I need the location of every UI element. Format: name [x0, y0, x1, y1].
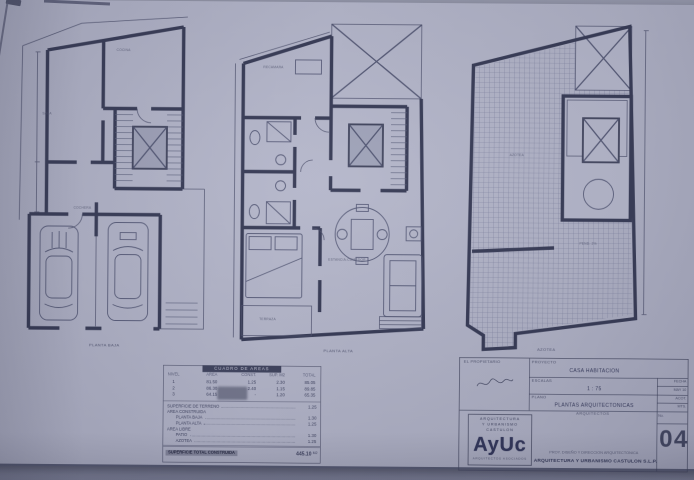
logo-wordmark: AyUc: [468, 435, 531, 455]
bed-icon: [246, 234, 303, 298]
divider: [529, 358, 530, 410]
void-x-symbol: [575, 26, 632, 90]
room-label: TERRAZA: [249, 318, 285, 322]
column-header: SUP. M2: [260, 373, 289, 379]
room-label: COCHERA: [64, 206, 100, 210]
areas-table-title: CUADRO DE AREAS: [202, 365, 281, 372]
elevator-symbol: [133, 127, 167, 169]
column-header: CONST.: [221, 373, 260, 380]
room-label: AZOTEA: [499, 153, 535, 157]
firm-logo: ARQUITECTURA Y URBANISMO CASTULON AyUc A…: [468, 414, 532, 466]
table-cell: 1.20: [260, 393, 289, 399]
divider: [529, 394, 688, 396]
room-label: COCINA: [106, 48, 142, 52]
total-label: SUPERFICIE TOTAL CONSTRUIDA: [166, 450, 238, 456]
car-icon: [39, 226, 78, 320]
side-cell: MAY 10: [658, 388, 686, 392]
balcony-rail: [379, 317, 421, 329]
table-header-row: NIVEL AREA CONST. SUP. M2 TOTAL: [165, 372, 319, 379]
total-value: 445.10: [296, 451, 311, 457]
firm-name: ARQUITECTURA Y URBANISMO CASTULON S.L.P.: [534, 457, 654, 464]
divider: [163, 400, 320, 402]
sofa-icon: [384, 227, 423, 317]
credit-line: PROY. DISEÑO Y DIRECCION ARQUITECTONICA: [538, 450, 650, 455]
table-total-row: SUPERFICIE TOTAL CONSTRUIDA 445.10 M2: [166, 447, 318, 458]
entry-steps-symbol: [165, 303, 197, 324]
logo-footer: ARQUITECTOS ASOCIADOS: [468, 457, 531, 461]
total-unit: M2: [313, 452, 318, 456]
scale-label: ESCALAS: [532, 379, 552, 383]
owner-label: EL PROPIETARIO: [464, 360, 501, 364]
plan-field-label: PLANO: [532, 396, 547, 400]
architect-header: ARQUITECTOS: [529, 412, 657, 417]
row-label: PLANTA ALTA: [176, 421, 202, 426]
table-cell: 3: [165, 392, 186, 398]
void-x-symbol: [331, 24, 422, 99]
car-icon: [107, 222, 148, 320]
elevator-symbol: [583, 118, 619, 162]
dining-table-icon: [335, 204, 389, 264]
room-label: PEND. 2%: [570, 242, 606, 246]
row-label: AZOTEA: [176, 439, 192, 444]
elevator-symbol: [349, 124, 383, 166]
row-value: 1.25: [298, 422, 317, 427]
stairs-symbol: [391, 113, 408, 185]
scale-value: 1 : 75: [532, 385, 657, 392]
signature-mark: [474, 373, 517, 395]
table-cell: 64.15: [186, 393, 221, 400]
floor-plan-ground: [15, 10, 190, 336]
sheet-number: 04: [659, 425, 689, 453]
title-block: EL PROPIETARIO PROYECTO CASA HABITACION …: [458, 357, 687, 471]
divider: [657, 403, 688, 404]
floor-plan-roof: [457, 17, 652, 352]
plan-label-upper: PLANTA ALTA: [304, 349, 372, 354]
table-row: AZOTEA1.25: [176, 437, 317, 444]
sheet-number-label: No.: [658, 414, 685, 418]
drawing-sheet: PLANTA BAJA PLANTA ALTA AZOTEA SALA COCI…: [0, 0, 694, 471]
project-label: PROYECTO: [532, 360, 557, 364]
column-header: TOTAL: [289, 373, 320, 379]
room-label: SALA: [29, 112, 65, 116]
areas-table: CUADRO DE AREAS NIVEL AREA CONST. SUP. M…: [162, 365, 321, 464]
side-cell: ACOT.: [658, 397, 686, 401]
table-cell: 65.35: [288, 393, 319, 399]
ink-smudge: [217, 387, 247, 400]
dresser-icon: [295, 60, 321, 74]
plan-label-roof: AZOTEA: [515, 348, 577, 353]
plan-field-value: PLANTAS ARQUITECTONICAS: [531, 402, 656, 409]
room-label: RECAMARA: [255, 66, 291, 70]
plan-label-ground: PLANTA BAJA: [70, 343, 138, 348]
side-cell: MTS.: [658, 405, 686, 409]
divider: [657, 386, 688, 387]
column-header: NIVEL: [165, 372, 186, 378]
row-value: 1.25: [298, 440, 317, 445]
photo-frame: PLANTA BAJA PLANTA ALTA AZOTEA SALA COCI…: [0, 0, 694, 480]
side-cell: FECHA: [658, 379, 686, 383]
room-label: ESTANCIA-COMEDOR: [323, 258, 371, 262]
project-value: CASA HABITACION: [532, 367, 657, 374]
column-header: AREA: [186, 373, 221, 380]
